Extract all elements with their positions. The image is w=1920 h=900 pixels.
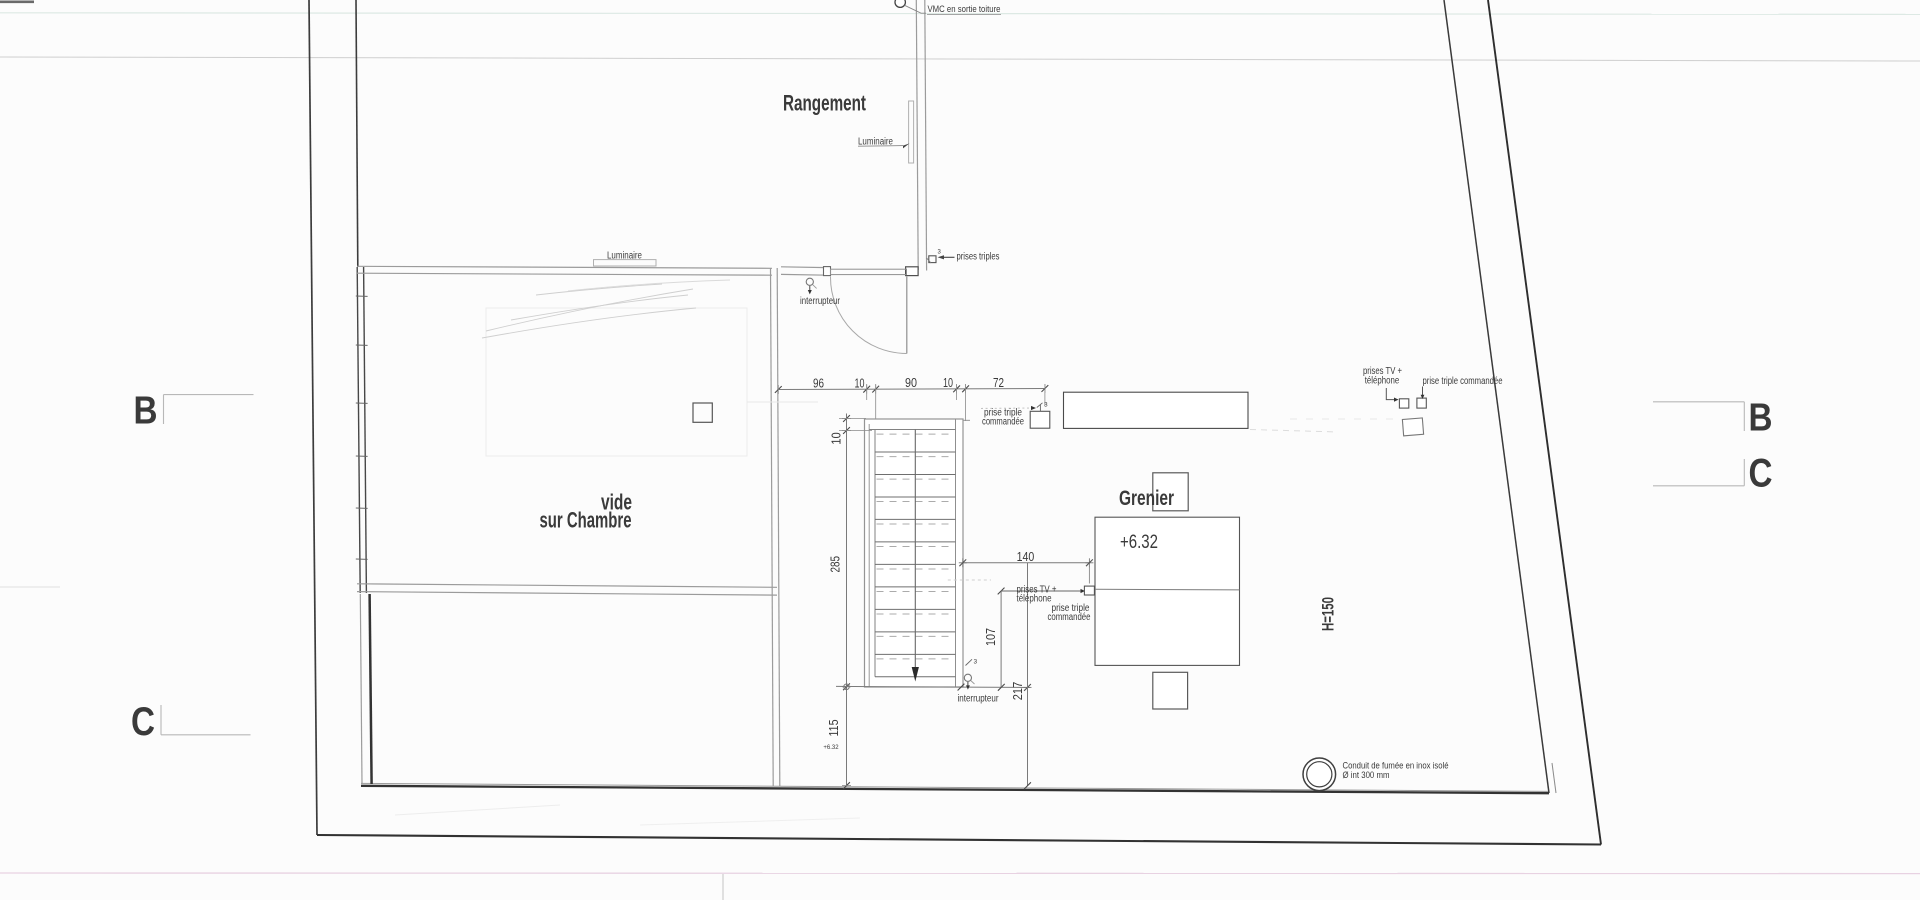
svg-text:prise triple commandée: prise triple commandée [1423, 376, 1503, 387]
svg-text:+6.32: +6.32 [823, 745, 839, 751]
svg-text:interrupteur: interrupteur [958, 693, 1000, 704]
svg-text:H=150: H=150 [1319, 597, 1338, 631]
svg-text:90: 90 [905, 375, 917, 390]
svg-text:10: 10 [943, 375, 953, 390]
svg-text:commandée: commandée [1048, 612, 1091, 623]
svg-text:téléphone: téléphone [1017, 593, 1052, 604]
svg-text:téléphone: téléphone [1365, 376, 1400, 387]
svg-text:interrupteur: interrupteur [800, 296, 841, 307]
svg-text:B: B [134, 390, 158, 433]
svg-text:prises triples: prises triples [957, 252, 1000, 263]
svg-text:72: 72 [993, 375, 1004, 390]
svg-text:10: 10 [830, 432, 844, 445]
svg-text:10: 10 [855, 376, 865, 391]
svg-text:commandée: commandée [982, 417, 1024, 428]
svg-text:285: 285 [829, 556, 843, 573]
svg-text:C: C [131, 700, 155, 744]
svg-text:Ø int 300 mm: Ø int 300 mm [1343, 770, 1390, 781]
svg-text:3: 3 [1044, 402, 1048, 409]
svg-text:VMC en sortie toiture: VMC en sortie toiture [928, 4, 1001, 15]
svg-text:107: 107 [984, 628, 998, 646]
svg-text:115: 115 [827, 719, 841, 736]
svg-text:B: B [1749, 397, 1773, 440]
svg-text:96: 96 [813, 376, 824, 391]
svg-text:3: 3 [974, 659, 978, 666]
svg-text:Rangement: Rangement [783, 91, 866, 116]
svg-text:140: 140 [1017, 549, 1035, 564]
svg-text:sur Chambre: sur Chambre [540, 508, 632, 533]
svg-text:C: C [1749, 451, 1773, 495]
svg-text:3: 3 [938, 250, 942, 256]
svg-text:217: 217 [1011, 682, 1025, 701]
svg-text:Grenier: Grenier [1119, 486, 1174, 510]
svg-text:+6.32: +6.32 [1120, 531, 1158, 553]
